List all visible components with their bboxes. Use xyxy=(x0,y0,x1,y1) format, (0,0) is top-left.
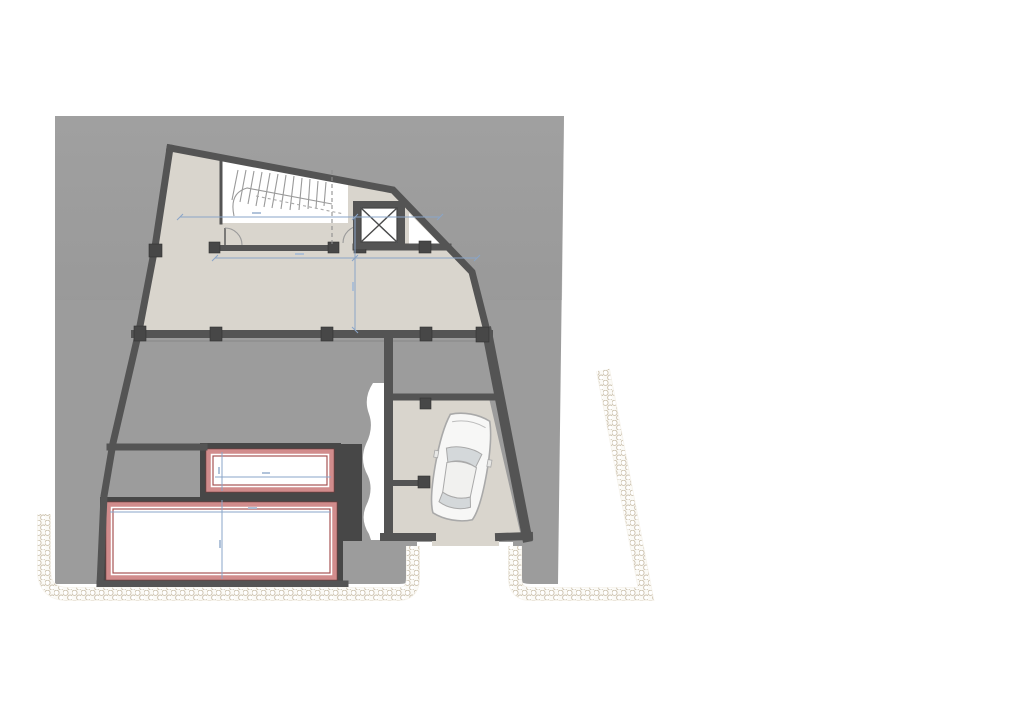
garage-door-strip xyxy=(432,533,499,546)
car-mirror-left xyxy=(434,450,439,458)
drawing-canvas xyxy=(0,0,1024,724)
pilaster xyxy=(418,476,430,488)
pilaster xyxy=(209,242,220,253)
pilaster xyxy=(419,241,431,253)
pilaster xyxy=(149,244,162,257)
pilaster xyxy=(476,327,489,342)
pilaster xyxy=(420,327,432,341)
pilaster xyxy=(210,327,222,341)
pilaster xyxy=(420,398,431,409)
garage-bottom-wall-right xyxy=(499,536,529,537)
pilaster xyxy=(321,327,333,341)
garage-left-wall xyxy=(384,334,393,540)
pilaster xyxy=(134,326,146,341)
car-mirror-right xyxy=(487,460,492,468)
elevator-shaft xyxy=(353,201,405,249)
pilaster xyxy=(328,242,339,253)
